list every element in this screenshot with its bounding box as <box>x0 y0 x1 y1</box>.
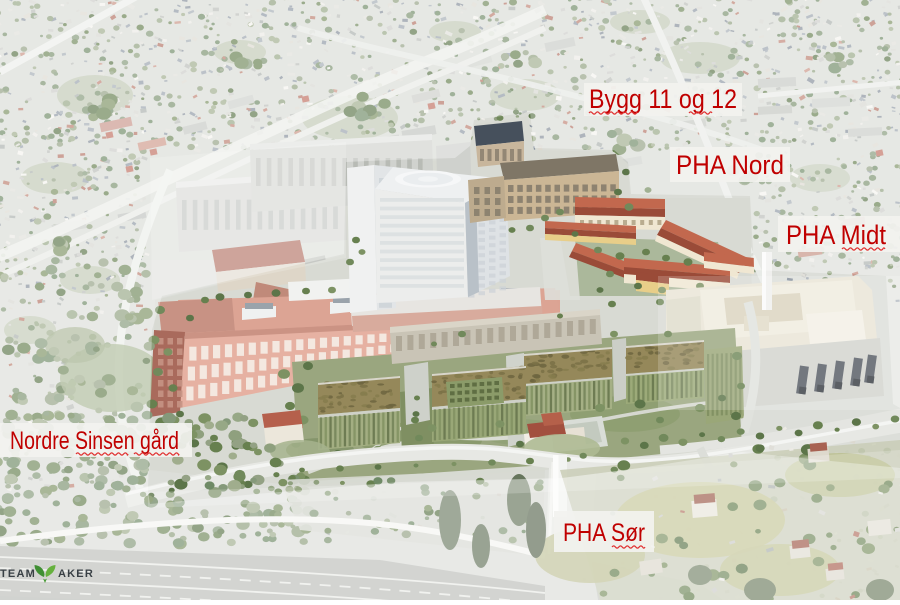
svg-text:Nordre Sinsen gård: Nordre Sinsen gård <box>10 427 179 455</box>
svg-text:TEAM: TEAM <box>0 568 36 580</box>
svg-text:PHA Sør: PHA Sør <box>563 519 645 547</box>
svg-text:PHA Midt: PHA Midt <box>786 220 886 250</box>
svg-text:PHA Nord: PHA Nord <box>676 150 784 180</box>
svg-text:Bygg 11 og 12: Bygg 11 og 12 <box>589 84 737 114</box>
svg-text:AKER: AKER <box>58 568 94 580</box>
